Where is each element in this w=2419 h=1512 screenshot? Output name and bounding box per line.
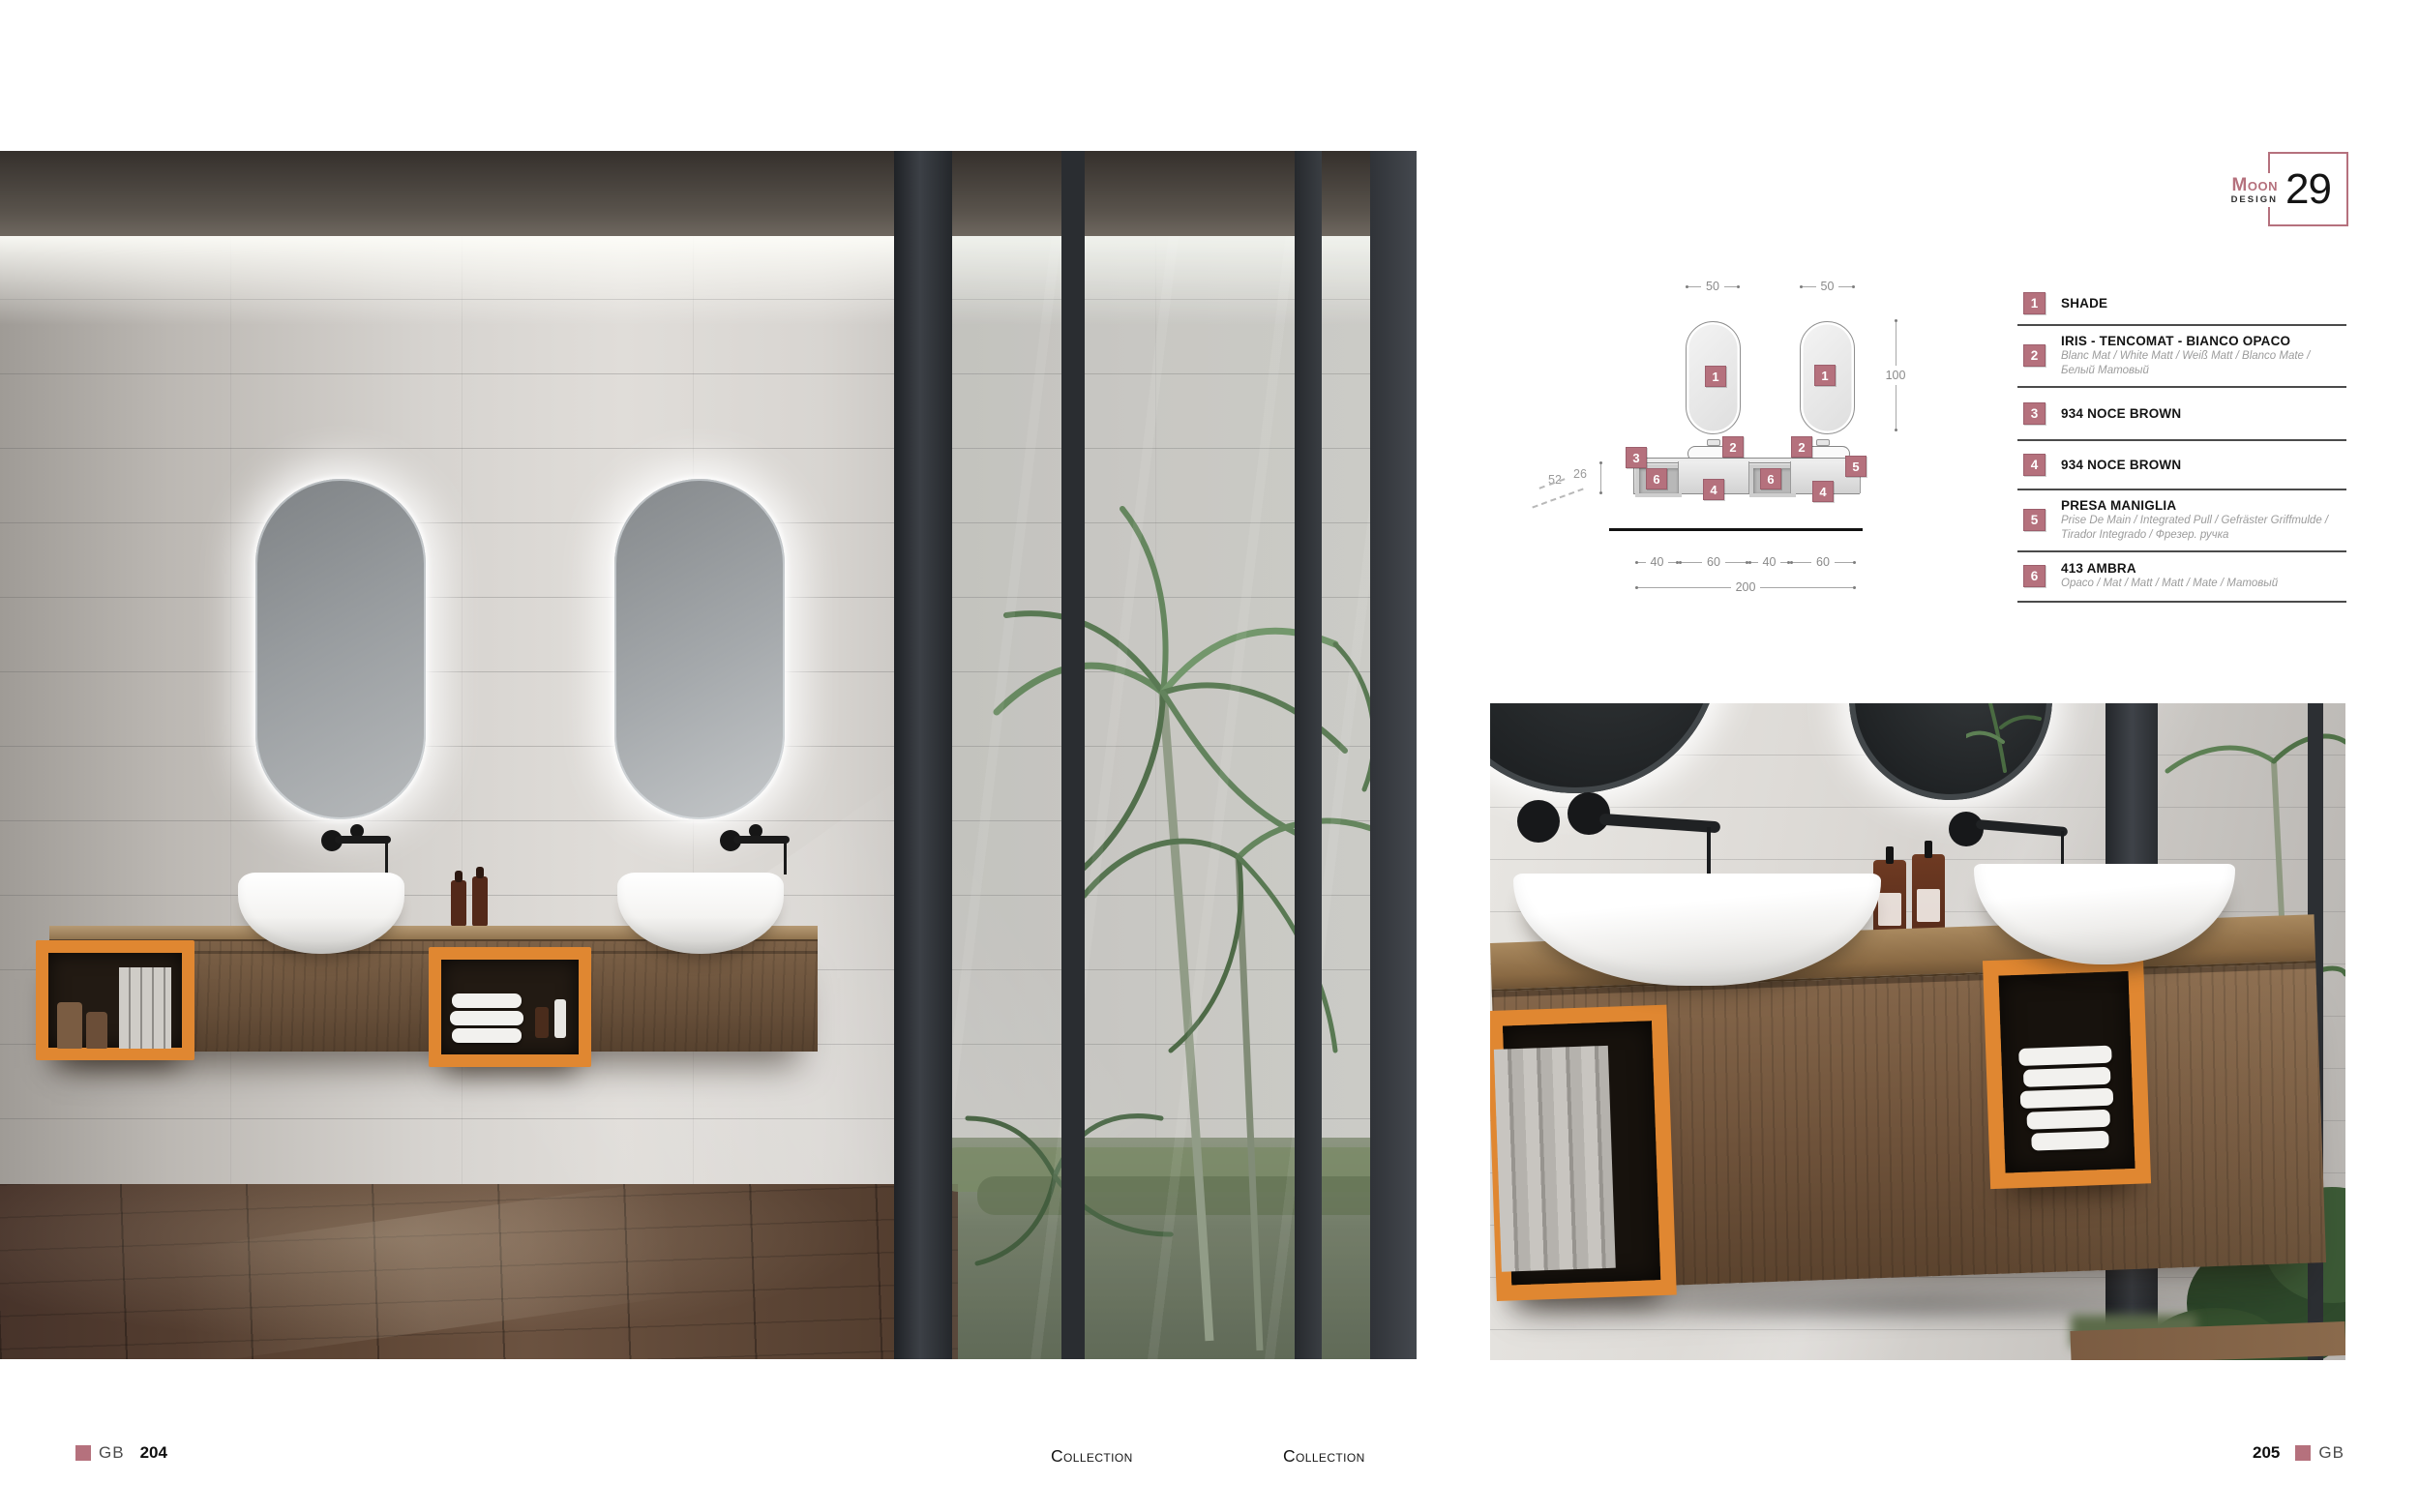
plant-sprig xyxy=(1966,703,2044,781)
dim-total-width: 200 xyxy=(1635,580,1856,594)
legend-marker: 5 xyxy=(2023,509,2046,531)
legend-row: 5 PRESA MANIGLIA Prise De Main / Integra… xyxy=(2017,490,2346,552)
brand-square-icon xyxy=(2295,1445,2311,1461)
dim-mirror-width-right: 50 xyxy=(1800,280,1855,293)
oval-mirror-right xyxy=(614,479,785,819)
orange-open-shelf-right xyxy=(429,947,591,1067)
legend-row: 6 413 AMBRA Opaco / Mat / Matt / Matt / … xyxy=(2017,552,2346,603)
drawing-marker: 2 xyxy=(1791,436,1812,458)
legend-row: 4 934 NOCE BROWN xyxy=(2017,441,2346,490)
footer-left: GB 204 xyxy=(75,1443,167,1463)
dim-segment-1: 40 xyxy=(1635,555,1679,569)
books xyxy=(1494,1046,1616,1272)
oval-mirror-left xyxy=(255,479,426,819)
jar xyxy=(57,1002,82,1049)
dim-depth-dash xyxy=(1532,488,1583,508)
glass-panel xyxy=(935,236,1417,1359)
legend-row: 1 SHADE xyxy=(2017,282,2346,326)
page-number: 205 xyxy=(2253,1443,2280,1463)
orange-open-shelf-left xyxy=(36,940,194,1060)
window-frame xyxy=(1295,151,1322,1359)
window-frame xyxy=(1061,151,1085,1359)
orange-open-shelf-left xyxy=(1490,1005,1677,1301)
brand-square-icon xyxy=(75,1445,91,1461)
legend-marker: 1 xyxy=(2023,292,2046,314)
legend-subtitle: Prise De Main / Integrated Pull / Gefräs… xyxy=(2061,514,2346,543)
dim-cabinet-height-line xyxy=(1597,461,1604,494)
legend-title: PRESA MANIGLIA xyxy=(2061,498,2346,513)
side-panel xyxy=(1370,151,1417,1359)
model-number: 29 xyxy=(2285,165,2331,214)
collection-label-right: Collection xyxy=(1283,1446,1365,1467)
legend-row: 3 934 NOCE BROWN xyxy=(2017,388,2346,441)
legend-title: IRIS - TENCOMAT - BIANCO OPACO xyxy=(2061,334,2346,348)
dim-cabinet-height: 26 xyxy=(1573,467,1587,481)
dim-segment-3: 40 xyxy=(1748,555,1790,569)
drawing-marker: 1 xyxy=(1814,365,1836,386)
brand-initials: GB xyxy=(2318,1443,2344,1463)
drawing-marker: 1 xyxy=(1705,366,1726,387)
legend-subtitle: Blanc Mat / White Matt / Weiß Matt / Bla… xyxy=(2061,349,2346,378)
orange-open-shelf-right xyxy=(1983,955,2151,1189)
ceiling xyxy=(0,151,1417,236)
drawing-marker: 6 xyxy=(1646,468,1667,489)
drawing-marker: 5 xyxy=(1845,456,1867,477)
legend-marker: 2 xyxy=(2023,344,2046,367)
catalog-spread: Moon Design 29 50 50 100 26 52 40 60 40 xyxy=(0,0,2419,1512)
detail-photo-vanity xyxy=(1490,703,2345,1360)
jar xyxy=(86,1012,107,1049)
drawing-marker: 4 xyxy=(1703,479,1724,500)
soap-bottles xyxy=(451,871,493,929)
drawing-faucet-left xyxy=(1707,439,1720,446)
legend-marker: 6 xyxy=(2023,565,2046,587)
drawing-marker: 3 xyxy=(1626,447,1647,468)
dim-segment-4: 60 xyxy=(1790,555,1856,569)
dim-mirror-height: 100 xyxy=(1881,319,1910,431)
books xyxy=(119,967,171,1049)
drawing-marker: 4 xyxy=(1812,481,1834,502)
dim-mirror-width-left: 50 xyxy=(1686,280,1740,293)
legend-marker: 3 xyxy=(2023,402,2046,425)
dim-segment-2: 60 xyxy=(1679,555,1748,569)
cosmetic-bottle xyxy=(535,1007,549,1038)
legend-title: 934 NOCE BROWN xyxy=(2061,458,2346,472)
legend-title: SHADE xyxy=(2061,296,2346,311)
footer-right: 205 GB xyxy=(2253,1443,2344,1463)
legend-title: 934 NOCE BROWN xyxy=(2061,406,2346,421)
legend-subtitle: Opaco / Mat / Matt / Matt / Mate / Матов… xyxy=(2061,577,2346,591)
legend-title: 413 AMBRA xyxy=(2061,561,2346,576)
drawing-floor-line xyxy=(1609,528,1863,531)
hero-photo-bathroom xyxy=(0,151,1417,1359)
collection-label-left: Collection xyxy=(1051,1446,1133,1467)
page-number: 204 xyxy=(140,1443,167,1463)
finish-legend: 1 SHADE 2 IRIS - TENCOMAT - BIANCO OPACO… xyxy=(2017,282,2346,603)
drawing-faucet-right xyxy=(1816,439,1830,446)
brand-initials: GB xyxy=(99,1443,125,1463)
drawing-marker: 6 xyxy=(1760,468,1781,489)
window-frame xyxy=(894,151,952,1359)
brand-logo-sub: Design xyxy=(2193,194,2283,207)
legend-row: 2 IRIS - TENCOMAT - BIANCO OPACO Blanc M… xyxy=(2017,326,2346,388)
legend-marker: 4 xyxy=(2023,454,2046,476)
cosmetic-tube xyxy=(554,999,566,1038)
drawing-marker: 2 xyxy=(1722,436,1744,458)
